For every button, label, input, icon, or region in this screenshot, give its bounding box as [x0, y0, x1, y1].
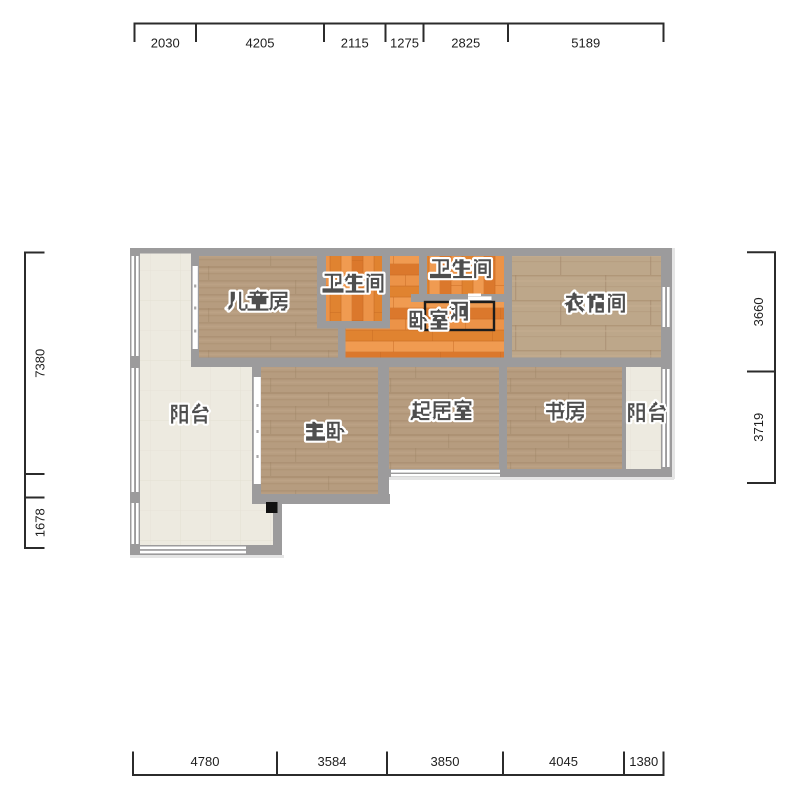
svg-text:2030: 2030	[151, 36, 180, 51]
svg-text:3850: 3850	[431, 754, 460, 769]
svg-text:3719: 3719	[751, 413, 766, 442]
svg-text:4045: 4045	[549, 754, 578, 769]
svg-text:7380: 7380	[32, 349, 47, 378]
svg-text:1678: 1678	[32, 508, 47, 537]
svg-text:4780: 4780	[191, 754, 220, 769]
svg-text:1275: 1275	[390, 36, 419, 51]
svg-text:3584: 3584	[318, 754, 347, 769]
svg-text:1380: 1380	[629, 754, 658, 769]
svg-text:2825: 2825	[451, 36, 480, 51]
svg-text:4205: 4205	[246, 36, 275, 51]
svg-text:3660: 3660	[751, 297, 766, 326]
svg-text:2115: 2115	[341, 36, 369, 51]
svg-text:5189: 5189	[571, 36, 600, 51]
